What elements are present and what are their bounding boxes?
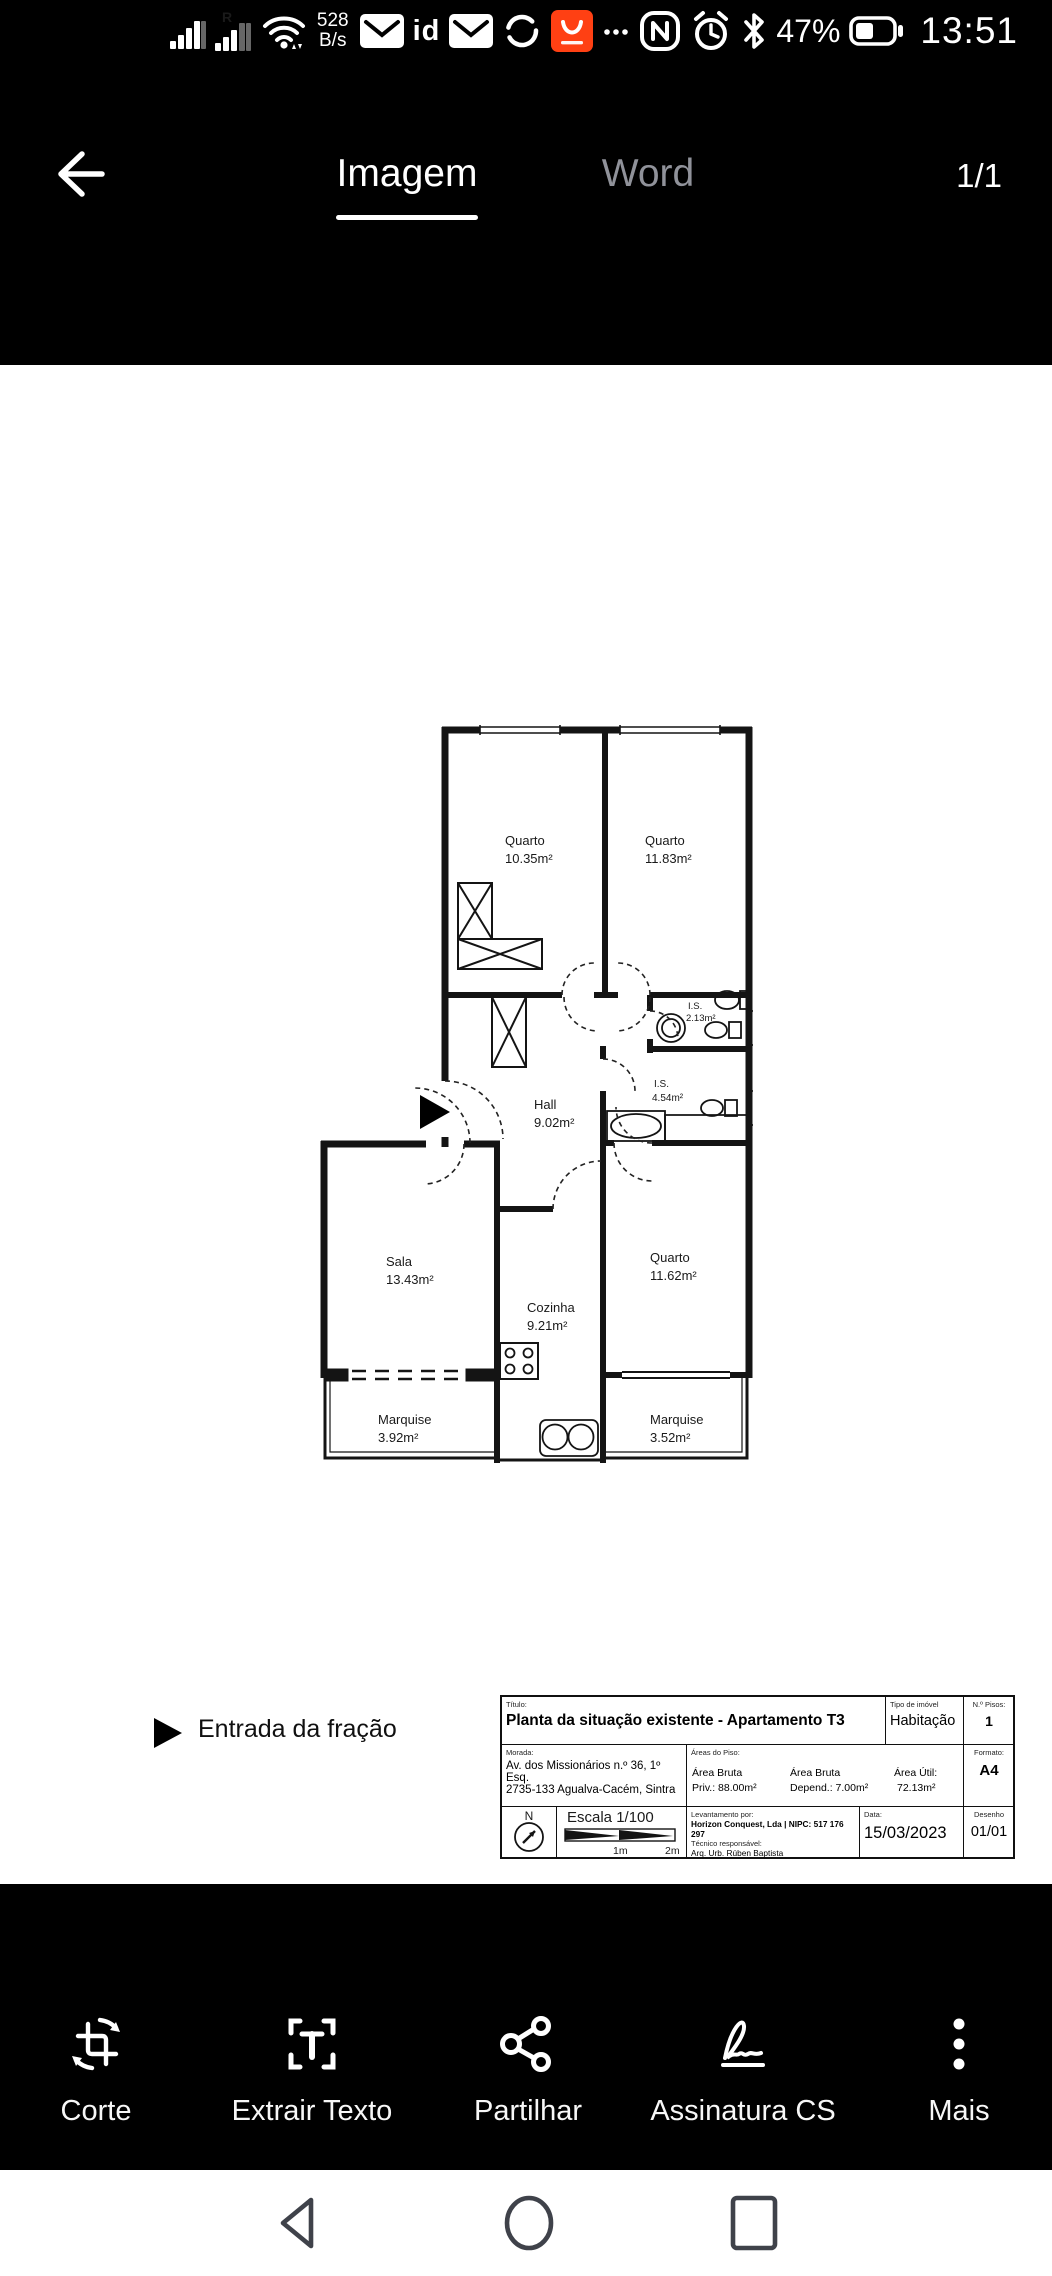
areas-label: Áreas do Piso: [691,1748,959,1757]
type-label: Tipo de imóvel [890,1700,959,1709]
extract-text-icon [280,2012,344,2076]
aliexpress-icon [551,10,593,52]
room-label: Marquise [378,1412,431,1427]
floors-label: N.º Pisos: [968,1700,1010,1709]
format-value: A4 [968,1762,1010,1779]
more-label: Mais [844,2095,1052,2128]
more-button[interactable]: Mais [844,2012,1052,2128]
date-label: Data: [864,1810,959,1819]
tab-imagem[interactable]: Imagem [337,152,478,196]
share-button[interactable]: Partilhar [413,2012,643,2128]
signature-icon [711,2012,775,2076]
floor-plan-image: Quarto 10.35m² Quarto 11.83m² I.S. 2.13m… [320,723,753,1467]
nav-home-button[interactable] [501,2194,557,2257]
titleblock-format-cell: Formato: A4 [964,1745,1014,1807]
svg-text:Escala 1/100: Escala 1/100 [567,1809,654,1826]
scale-bar: Escala 1/100 1m 2m [557,1807,687,1858]
plan-title: Planta da situação existente - Apartamen… [506,1712,881,1730]
entrance-arrow-icon [152,1717,186,1749]
battery-percent: 47% [776,13,840,50]
bluetooth-icon [741,10,767,52]
room-label: I.S. [688,1001,702,1012]
survey-label: Levantamento por: [691,1810,855,1819]
titleblock-title-cell: Título: Planta da situação existente - A… [502,1697,886,1745]
overflow-dots-icon [602,11,630,51]
titleblock-address-cell: Morada: Av. dos Missionários n.º 36, 1º … [502,1745,687,1807]
share-icon [496,2012,560,2076]
titleblock-type-cell: Tipo de imóvel Habitação [886,1697,964,1745]
entrance-legend-label: Entrada da fração [198,1715,397,1744]
active-tab-underline [336,215,478,220]
area-gross-label: Área Bruta [692,1767,742,1779]
net-speed-unit: B/s [319,30,346,51]
svg-text:2m: 2m [665,1845,680,1857]
area-dep-value: Depend.: 7.00m² [790,1782,868,1794]
room-label: Sala [386,1254,413,1269]
svg-text:R: R [222,9,232,25]
room-label: Quarto [505,833,545,848]
north-compass-icon: N [502,1807,557,1858]
android-navbar [0,2170,1052,2276]
nav-home-icon [501,2194,557,2252]
title-block: Título: Planta da situação existente - A… [500,1695,1015,1859]
room-area: 11.62m² [650,1268,697,1283]
area-dep-label: Área Bruta [790,1767,840,1779]
alarm-icon [690,9,732,53]
crop-label: Corte [0,2095,211,2128]
room-label: Quarto [645,833,685,848]
drawing-label: Desenho [968,1810,1010,1819]
room-label: Quarto [650,1250,690,1265]
svg-text:N: N [525,1809,534,1823]
room-label: I.S. [654,1079,669,1090]
room-area: 9.02m² [534,1115,575,1130]
clock: 13:51 [920,10,1018,52]
area-gross-value: Priv.: 88.00m² [692,1782,757,1794]
title-label: Título: [506,1700,881,1709]
room-area: 3.92m² [378,1430,419,1445]
nav-recents-button[interactable] [727,2194,781,2257]
drawing-value: 01/01 [968,1824,1010,1840]
id-icon: id [413,15,441,48]
tech-label: Técnico responsável: [691,1839,855,1848]
address-line2: 2735-133 Agualva-Cacém, Sintra [506,1784,682,1796]
area-net-label: Área Útil: [894,1767,937,1779]
signal-icon [170,11,206,51]
room-label: Hall [534,1097,557,1112]
room-area: 3.52m² [650,1430,691,1445]
room-area: 13.43m² [386,1272,434,1287]
net-speed-value: 528 [317,10,349,31]
tab-word[interactable]: Word [602,152,694,196]
room-label: Marquise [650,1412,703,1427]
date-value: 15/03/2023 [864,1824,959,1843]
area-net-value: 72.13m² [897,1782,936,1794]
room-area: 2.13m² [686,1013,716,1024]
format-label: Formato: [968,1748,1010,1757]
room-area: 4.54m² [652,1093,684,1104]
room-area: 10.35m² [505,851,553,866]
survey-company: Horizon Conquest, Lda | NIPC: 517 176 29… [691,1819,855,1839]
page-indicator: 1/1 [956,157,1002,195]
mail-icon [360,14,404,48]
share-label: Partilhar [413,2095,643,2128]
header: Imagem Word 1/1 [0,62,1052,365]
status-bar: R 528 B/s id [0,0,1052,62]
nav-recents-icon [727,2194,781,2252]
battery-icon [849,15,905,47]
nav-back-icon [275,2194,319,2252]
signature-label: Assinatura CS [628,2095,858,2128]
type-value: Habitação [890,1713,959,1729]
titleblock-areas-cell: Áreas do Piso: Área Bruta Priv.: 88.00m²… [687,1745,964,1807]
signal-r-icon: R [215,9,253,53]
tech-name: Arq. Urb. Rúben Baptista [691,1848,855,1858]
nfc-icon [639,10,681,52]
titleblock-floors-cell: N.º Pisos: 1 [964,1697,1014,1745]
titleblock-drawing-cell: Desenho 01/01 [964,1807,1014,1858]
titleblock-date-cell: Data: 15/03/2023 [860,1807,964,1858]
crop-button[interactable]: Corte [0,2012,211,2128]
bottom-toolbar: Corte Extrair Texto Partilhar Assin [0,1884,1052,2170]
signature-button[interactable]: Assinatura CS [628,2012,858,2128]
document-page[interactable]: Quarto 10.35m² Quarto 11.83m² I.S. 2.13m… [0,365,1052,1884]
svg-text:1m: 1m [613,1845,628,1857]
address-line1: Av. dos Missionários n.º 36, 1º Esq. [506,1760,682,1784]
floors-value: 1 [968,1713,1010,1729]
nav-back-button[interactable] [275,2194,319,2257]
extract-text-label: Extrair Texto [197,2095,427,2128]
mail-icon [449,14,493,48]
room-area: 11.83m² [645,851,692,866]
room-area: 9.21m² [527,1318,568,1333]
back-arrow-icon [52,146,108,202]
network-speed-indicator: 528 B/s [317,11,349,51]
sync-icon [502,11,542,51]
extract-text-button[interactable]: Extrair Texto [197,2012,427,2128]
titleblock-scale-cell: Escala 1/100 1m 2m [557,1807,687,1858]
titleblock-north-cell: N [502,1807,557,1858]
address-label: Morada: [506,1748,682,1757]
titleblock-survey-cell: Levantamento por: Horizon Conquest, Lda … [687,1807,860,1858]
crop-icon [64,2012,128,2076]
room-label: Cozinha [527,1300,575,1315]
more-icon [927,2012,991,2076]
back-button[interactable] [52,146,108,207]
wifi-icon [262,11,306,51]
